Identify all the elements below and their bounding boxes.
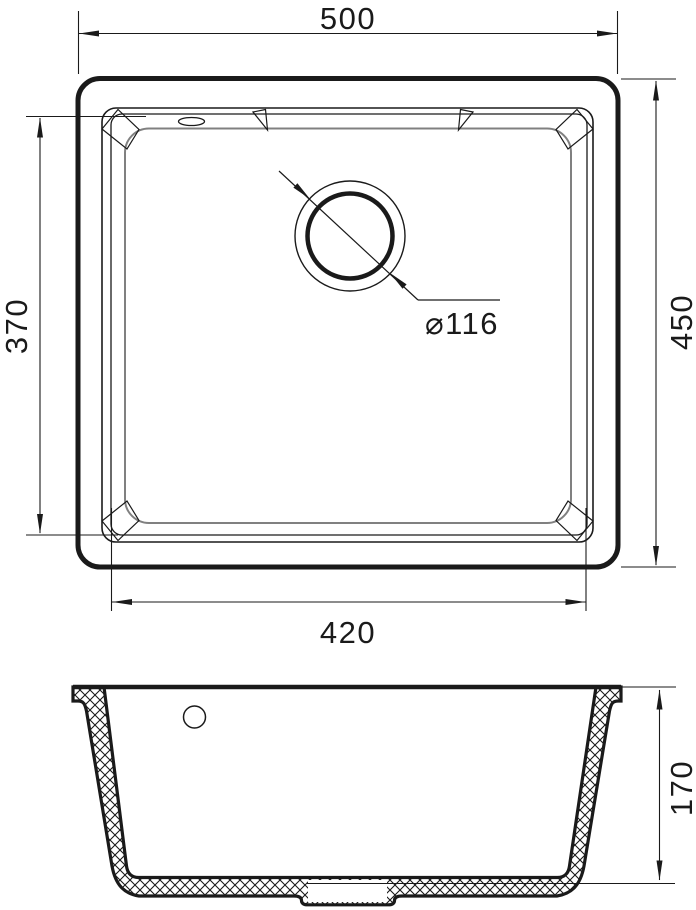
arrowhead	[597, 31, 617, 37]
bowl-depth-side-label: 370	[0, 298, 34, 354]
sink-outer-body	[78, 79, 618, 568]
arrowhead	[653, 546, 659, 566]
drain-outer-circle	[295, 181, 405, 291]
overflow-slot	[179, 118, 205, 126]
top-view	[78, 79, 618, 568]
section-view: 170	[73, 687, 696, 905]
rim-notches	[253, 110, 473, 131]
drain-inner-circle	[308, 194, 393, 279]
arrowhead	[79, 31, 99, 37]
basin-top-edge	[125, 129, 571, 524]
drain-diameter-label: ⌀116	[425, 306, 499, 341]
dim-450: 450	[621, 79, 696, 567]
arrowhead	[37, 118, 43, 138]
section-material	[73, 687, 621, 905]
sink-drawing-svg: ⌀116 500 450 370 420	[0, 0, 696, 910]
rim-bevel-edge	[111, 114, 587, 535]
arrowhead	[37, 514, 43, 534]
bowl-width-label: 420	[320, 615, 376, 650]
dim-500: 500	[79, 1, 618, 74]
dim-170: 170	[621, 687, 696, 881]
bowl-height-label: 170	[664, 760, 696, 816]
corner-chamfer-top-left	[102, 110, 139, 150]
rim-notch-left	[253, 110, 268, 131]
arrowhead	[566, 599, 586, 605]
overall-depth-label: 450	[664, 294, 696, 350]
arrowhead	[293, 183, 310, 199]
dim-420: 420	[112, 508, 587, 650]
arrowhead	[112, 599, 132, 605]
arrowhead	[657, 861, 663, 881]
rim-notch-right	[459, 110, 474, 131]
rim-outer-edge	[102, 108, 593, 542]
overall-width-label: 500	[320, 1, 376, 36]
arrowhead	[657, 690, 663, 710]
technical-drawing-canvas: ⌀116 500 450 370 420	[0, 0, 696, 910]
arrowhead	[390, 273, 407, 289]
corner-chamfers	[102, 110, 593, 541]
overflow-hole	[184, 706, 206, 728]
arrowhead	[653, 81, 659, 101]
